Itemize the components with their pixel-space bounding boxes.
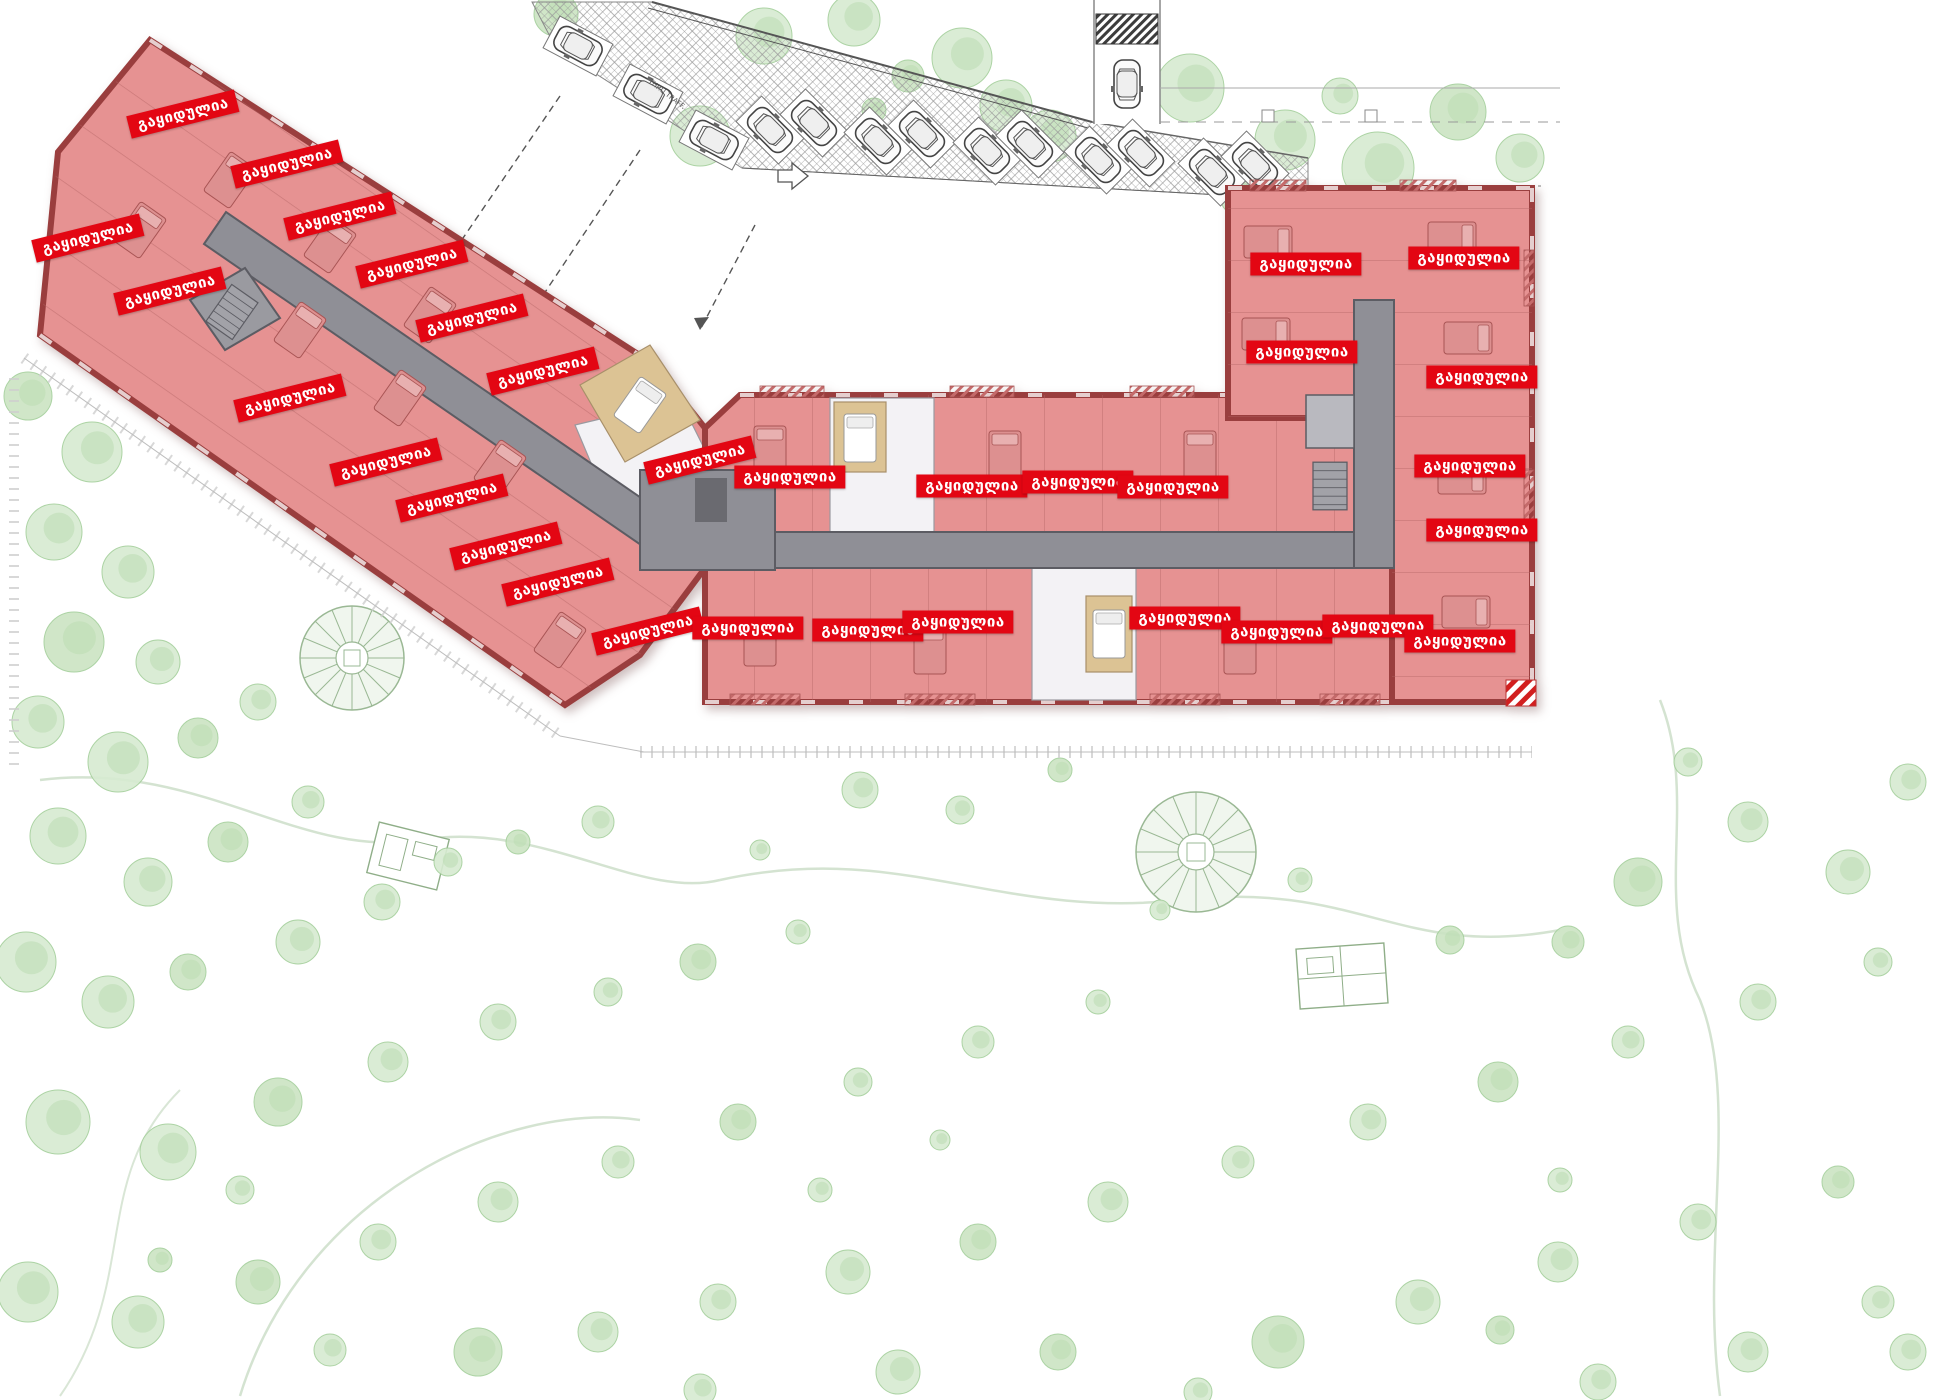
tree — [1890, 764, 1926, 800]
tree — [1088, 1182, 1128, 1222]
tree — [140, 1124, 196, 1180]
tree — [1396, 1280, 1440, 1324]
tree — [1252, 1316, 1304, 1368]
tree — [946, 796, 974, 824]
tree — [826, 1250, 870, 1294]
tree — [82, 976, 134, 1028]
tree — [1740, 984, 1776, 1020]
tree — [314, 1334, 346, 1366]
tree — [480, 1004, 516, 1040]
tree — [88, 732, 148, 792]
tree — [1040, 1334, 1076, 1370]
parked-car — [1111, 60, 1143, 108]
corridor — [705, 532, 1392, 568]
tree — [506, 830, 530, 854]
tree — [1822, 1166, 1854, 1198]
tree — [1496, 134, 1544, 182]
tree — [368, 1042, 408, 1082]
tree — [684, 1374, 716, 1400]
tree — [434, 848, 462, 876]
tree — [1862, 1286, 1894, 1318]
tree — [1552, 926, 1584, 958]
ramp-stripes — [1506, 680, 1536, 706]
tree — [1436, 926, 1464, 954]
tree — [454, 1328, 502, 1376]
tree — [1086, 990, 1110, 1014]
tree — [1890, 1334, 1926, 1370]
buildings-layer — [0, 0, 1935, 1400]
tree — [26, 1090, 90, 1154]
floor-plan-canvas: THRU TRAFF. STOP — [0, 0, 1935, 1400]
tree — [876, 1350, 920, 1394]
tree — [962, 1026, 994, 1058]
tree — [478, 1182, 518, 1222]
tree — [62, 422, 122, 482]
tree — [1864, 948, 1892, 976]
tree — [360, 1224, 396, 1260]
tree — [1680, 1204, 1716, 1240]
tree — [786, 920, 810, 944]
tree — [1728, 802, 1768, 842]
tree — [828, 0, 880, 46]
tree — [750, 840, 770, 860]
tree — [1322, 78, 1358, 114]
tree — [932, 28, 992, 88]
tree — [602, 1146, 634, 1178]
tree — [240, 684, 276, 720]
tree — [1430, 84, 1486, 140]
tree — [0, 1262, 58, 1322]
tree — [680, 944, 716, 980]
tree — [226, 1176, 254, 1204]
tree — [136, 640, 180, 684]
tree — [842, 772, 878, 808]
tree — [1184, 1378, 1212, 1400]
tree — [1048, 758, 1072, 782]
tree — [1150, 900, 1170, 920]
tree — [1350, 1104, 1386, 1140]
tree — [578, 1312, 618, 1352]
tree — [1614, 858, 1662, 906]
gazebo — [300, 606, 404, 710]
site-plan-svg: THRU TRAFF. STOP — [0, 0, 1935, 1400]
tree — [276, 920, 320, 964]
corridor — [1354, 300, 1394, 568]
tree — [364, 884, 400, 920]
tree — [1728, 1332, 1768, 1372]
tree — [1288, 868, 1312, 892]
tree — [44, 612, 104, 672]
ramp-hatch — [1096, 14, 1158, 44]
tree — [1538, 1242, 1578, 1282]
tree — [102, 546, 154, 598]
tree — [1612, 1026, 1644, 1058]
tree — [178, 718, 218, 758]
tree — [292, 786, 324, 818]
tree — [720, 1104, 756, 1140]
tree — [208, 822, 248, 862]
tree — [1486, 1316, 1514, 1344]
tree — [254, 1078, 302, 1126]
tree — [1674, 748, 1702, 776]
tree — [124, 858, 172, 906]
tree — [1478, 1062, 1518, 1102]
park-structure — [1296, 943, 1388, 1009]
tree — [1826, 850, 1870, 894]
tree — [236, 1260, 280, 1304]
tree — [1222, 1146, 1254, 1178]
tree — [112, 1296, 164, 1348]
tree — [808, 1178, 832, 1202]
stairs — [1313, 462, 1347, 510]
tree — [26, 504, 82, 560]
tree — [930, 1130, 950, 1150]
tree — [30, 808, 86, 864]
tree — [170, 954, 206, 990]
tree — [1580, 1364, 1616, 1400]
tree — [844, 1068, 872, 1096]
tree — [594, 978, 622, 1006]
tree — [700, 1284, 736, 1320]
tree — [582, 806, 614, 838]
tree — [1548, 1168, 1572, 1192]
tree — [960, 1224, 996, 1260]
elevator — [695, 478, 727, 522]
tree — [148, 1248, 172, 1272]
tree — [12, 696, 64, 748]
tree — [0, 932, 56, 992]
gazebo — [1136, 792, 1256, 912]
